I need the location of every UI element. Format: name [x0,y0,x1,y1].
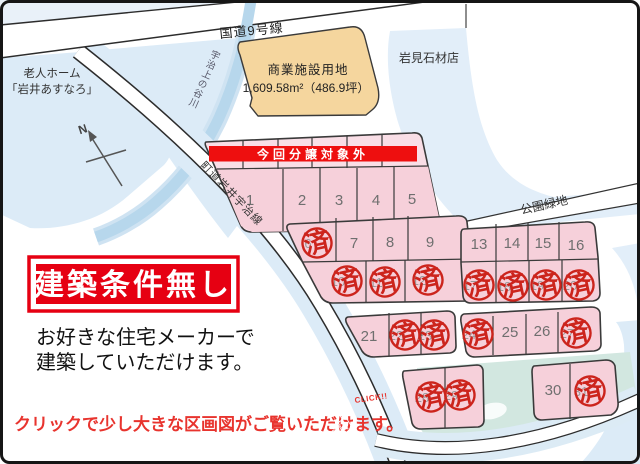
commercial-land-area: 1,609.58m²（486.9坪） [243,81,370,95]
promo: 建築条件無し お好きな住宅メーカーで 建築していただけます。 [29,257,255,374]
nursing-home-label-1: 老人ホーム [23,67,80,80]
promo-line-1: お好きな住宅メーカーで [36,326,255,349]
lot-number-5: 5 [408,191,416,208]
lot-number-2: 2 [298,192,306,209]
lot-number-30: 30 [545,382,562,399]
stone-shop-label: 岩見石材店 [399,50,459,65]
lot-number-8: 8 [386,234,394,251]
lot-number-26: 26 [534,323,551,340]
lot-number-21: 21 [361,328,378,345]
lot-number-15: 15 [535,235,552,252]
lot-number-3: 3 [335,192,343,209]
lot-number-16: 16 [568,237,585,254]
lot-number-25: 25 [502,324,519,341]
commercial-land: 商業施設用地 1,609.58m²（486.9坪） [238,27,379,116]
lot-number-7: 7 [350,235,358,252]
lot-number-14: 14 [504,235,521,252]
promo-line-2: 建築していただけます。 [36,351,253,374]
land-plot-map[interactable]: 商業施設用地 1,609.58m²（486.9坪） 今回分譲対象外 [0,0,640,464]
plot-map-page: 商業施設用地 1,609.58m²（486.9坪） 今回分譲対象外 [0,0,640,464]
lot-number-9: 9 [426,234,434,251]
lot-number-13: 13 [471,236,488,253]
not-for-sale-banner-label: 今回分譲対象外 [256,147,369,162]
nursing-home-label-2: 「岩井あすなろ」 [6,82,98,96]
promo-box-label: 建築条件無し [34,268,232,302]
commercial-land-title: 商業施設用地 [267,62,348,77]
lot-number-4: 4 [372,192,380,209]
block-a: 今回分譲対象外 [205,133,440,232]
